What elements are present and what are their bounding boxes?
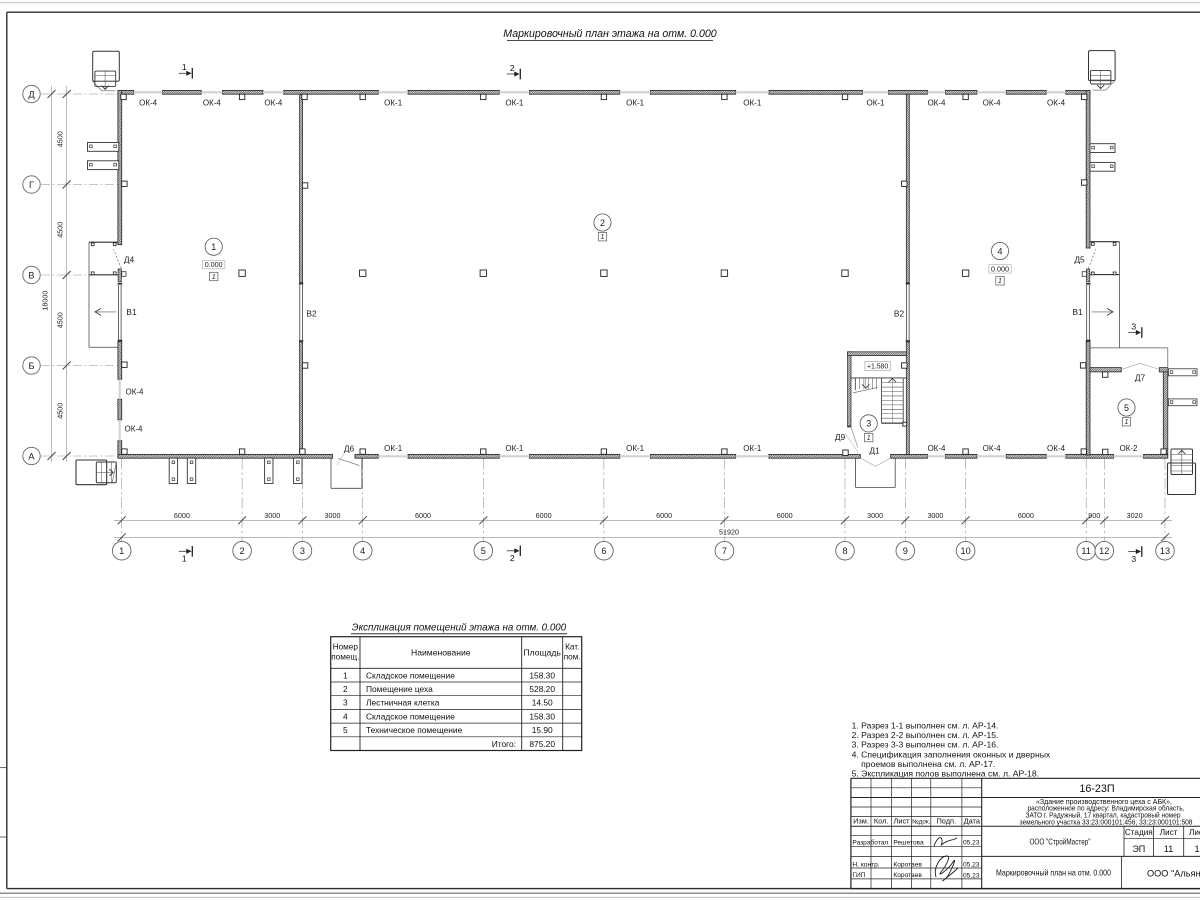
svg-text:№док.: №док. (912, 818, 930, 825)
svg-text:Складское помещение: Складское помещение (366, 670, 455, 680)
svg-text:ООО "Альянс: ООО "Альянс (1147, 868, 1200, 878)
svg-text:3. Разрез 3-3 выполнен см. л.: 3. Разрез 3-3 выполнен см. л. АР-16. (852, 740, 999, 750)
svg-text:875.20: 875.20 (529, 739, 555, 749)
svg-text:1: 1 (1125, 419, 1129, 426)
svg-text:11: 11 (1164, 844, 1173, 854)
svg-text:9: 9 (903, 546, 908, 556)
svg-text:1: 1 (182, 554, 187, 564)
svg-text:Лестничная клетка: Лестничная клетка (366, 698, 440, 708)
svg-text:Разработал: Разработал (852, 838, 888, 846)
svg-text:Техническое помещение: Техническое помещение (366, 725, 463, 735)
svg-text:6000: 6000 (777, 511, 793, 520)
svg-text:ОК-4: ОК-4 (264, 98, 283, 107)
svg-text:пом.: пом. (564, 653, 581, 662)
svg-text:ОК-1: ОК-1 (384, 444, 403, 453)
svg-text:+1.580: +1.580 (867, 363, 888, 370)
svg-text:900: 900 (1088, 511, 1100, 520)
svg-text:Д4: Д4 (124, 255, 135, 265)
svg-text:ОК-1: ОК-1 (743, 98, 762, 107)
svg-text:2: 2 (343, 684, 348, 694)
svg-text:ОК-4: ОК-4 (983, 444, 1002, 453)
svg-text:ОК-4: ОК-4 (125, 425, 144, 434)
svg-text:05.23: 05.23 (963, 840, 980, 847)
svg-text:16-23П: 16-23П (1079, 783, 1114, 795)
svg-text:4: 4 (997, 246, 1002, 256)
svg-text:ОК-4: ОК-4 (203, 98, 222, 107)
svg-text:ОК-4: ОК-4 (927, 444, 946, 453)
svg-text:1: 1 (343, 670, 348, 680)
svg-text:1. Разрез 1-1 выполнен см. л.: 1. Разрез 1-1 выполнен см. л. АР-14. (852, 720, 999, 730)
svg-text:1: 1 (601, 234, 605, 241)
svg-text:Помещение цеха: Помещение цеха (366, 684, 433, 694)
svg-text:Д6: Д6 (344, 444, 355, 454)
svg-text:1: 1 (212, 274, 216, 281)
svg-text:4. Спецификация заполнения око: 4. Спецификация заполнения оконных и две… (852, 749, 1051, 759)
svg-text:13: 13 (1160, 546, 1170, 556)
svg-text:Лис: Лис (1189, 828, 1200, 837)
svg-text:ОК-1: ОК-1 (626, 444, 645, 453)
svg-text:12: 12 (1099, 546, 1109, 556)
svg-text:5: 5 (1124, 403, 1129, 413)
svg-text:Кол.: Кол. (874, 817, 889, 826)
svg-text:В1: В1 (126, 307, 137, 317)
svg-text:ОК-4: ОК-4 (927, 98, 946, 107)
svg-text:3: 3 (866, 419, 871, 429)
svg-text:3000: 3000 (325, 511, 341, 520)
svg-text:Н. контр.: Н. контр. (852, 861, 879, 868)
svg-text:земельного участка 33:23:00010: земельного участка 33:23:000101:456, 33:… (1020, 817, 1193, 826)
svg-text:158.30: 158.30 (529, 670, 555, 680)
svg-text:А: А (28, 451, 35, 461)
svg-text:3: 3 (300, 546, 305, 556)
svg-text:2: 2 (510, 553, 515, 563)
svg-text:2. Разрез 2-2 выполнен см. л.: 2. Разрез 2-2 выполнен см. л. АР-15. (852, 730, 999, 740)
svg-text:проемов выполнена см. л. АР-17: проемов выполнена см. л. АР-17. (852, 759, 996, 769)
svg-text:8: 8 (842, 546, 847, 556)
svg-text:3: 3 (343, 698, 348, 708)
svg-text:5: 5 (481, 546, 486, 556)
svg-text:6000: 6000 (656, 511, 672, 520)
svg-text:ОК-4: ОК-4 (1047, 98, 1066, 107)
svg-text:ОК-1: ОК-1 (743, 444, 762, 453)
svg-text:3: 3 (1131, 554, 1136, 564)
svg-text:Д: Д (28, 89, 35, 99)
svg-text:4500: 4500 (56, 403, 65, 419)
svg-text:Д9: Д9 (835, 432, 846, 442)
svg-text:6000: 6000 (174, 511, 190, 520)
svg-text:Итого:: Итого: (492, 739, 516, 749)
svg-text:Д1: Д1 (869, 446, 880, 456)
svg-text:Маркировочный план этажа на от: Маркировочный план этажа на отм. 0.000 (503, 28, 716, 40)
svg-text:11: 11 (1081, 546, 1091, 556)
svg-text:528.20: 528.20 (529, 684, 555, 694)
svg-text:3: 3 (1131, 321, 1136, 331)
svg-text:ОК-1: ОК-1 (384, 98, 403, 107)
svg-text:Наименование: Наименование (411, 648, 471, 658)
svg-text:ОК-4: ОК-4 (983, 98, 1002, 107)
svg-text:4: 4 (360, 546, 365, 556)
svg-text:5: 5 (343, 725, 348, 735)
svg-text:Складское помещение: Складское помещение (366, 711, 455, 721)
svg-text:3000: 3000 (927, 511, 943, 520)
svg-text:2: 2 (240, 546, 245, 556)
svg-text:Стадия: Стадия (1125, 828, 1153, 837)
svg-text:1: 1 (182, 62, 187, 72)
svg-text:ОК-1: ОК-1 (626, 98, 645, 107)
svg-text:Кат.: Кат. (565, 643, 579, 652)
svg-text:4500: 4500 (56, 312, 65, 328)
svg-text:ОК-4: ОК-4 (139, 98, 158, 107)
svg-text:5. Экспликация полов выполнена: 5. Экспликация полов выполнена см. л. АР… (852, 769, 1039, 779)
svg-text:Д5: Д5 (1074, 255, 1085, 265)
svg-text:ОК-2: ОК-2 (1120, 444, 1139, 453)
svg-text:помещ.: помещ. (331, 653, 359, 662)
svg-text:Изм.: Изм. (853, 817, 869, 826)
svg-text:ООО "СтройМастер": ООО "СтройМастер" (1030, 838, 1091, 847)
svg-text:2: 2 (510, 63, 515, 73)
svg-text:3000: 3000 (867, 511, 883, 520)
svg-text:ГИП: ГИП (852, 872, 865, 879)
svg-text:7: 7 (722, 546, 727, 556)
svg-text:6000: 6000 (536, 511, 552, 520)
svg-text:6000: 6000 (415, 511, 431, 520)
svg-text:4500: 4500 (56, 131, 65, 147)
svg-text:15.90: 15.90 (532, 725, 553, 735)
svg-text:14.50: 14.50 (532, 698, 553, 708)
svg-text:3020: 3020 (1127, 511, 1143, 520)
svg-text:Маркировочный план на отм. 0.0: Маркировочный план на отм. 0.000 (996, 868, 1111, 877)
svg-text:1: 1 (211, 242, 216, 252)
svg-text:05.23: 05.23 (963, 862, 980, 869)
svg-text:ОК-1: ОК-1 (867, 98, 886, 107)
svg-text:Д7: Д7 (1135, 373, 1146, 383)
svg-text:158.30: 158.30 (529, 711, 555, 721)
svg-text:ОК-4: ОК-4 (1047, 444, 1066, 453)
svg-text:ЭП: ЭП (1132, 844, 1145, 854)
svg-text:ОК-1: ОК-1 (505, 444, 524, 453)
svg-text:1: 1 (119, 546, 124, 556)
svg-text:3000: 3000 (264, 511, 280, 520)
svg-text:0.000: 0.000 (991, 264, 1009, 273)
svg-text:4: 4 (343, 711, 348, 721)
svg-text:В: В (28, 270, 34, 280)
svg-text:10: 10 (960, 546, 970, 556)
svg-text:Коротаев: Коротаев (893, 861, 922, 868)
svg-text:В2: В2 (894, 308, 905, 318)
svg-text:1: 1 (998, 278, 1002, 285)
svg-text:ОК-1: ОК-1 (505, 98, 524, 107)
svg-text:Решетова: Решетова (893, 839, 924, 846)
svg-text:4500: 4500 (56, 222, 65, 238)
svg-text:В1: В1 (1072, 307, 1083, 317)
svg-text:Коротаев: Коротаев (893, 872, 922, 879)
svg-text:Дата: Дата (964, 817, 981, 826)
svg-text:6: 6 (601, 546, 606, 556)
svg-text:18000: 18000 (40, 291, 49, 311)
svg-text:Лист: Лист (1160, 828, 1178, 837)
svg-text:Экспликация помещений этажа на: Экспликация помещений этажа на отм. 0.00… (352, 623, 567, 634)
svg-text:1: 1 (867, 435, 871, 442)
svg-text:51920: 51920 (719, 528, 739, 537)
svg-text:0.000: 0.000 (205, 260, 223, 269)
svg-text:Площадь: Площадь (523, 648, 561, 658)
svg-text:Г: Г (29, 180, 34, 190)
svg-text:6000: 6000 (1018, 511, 1034, 520)
svg-text:Б: Б (28, 361, 34, 371)
svg-text:В2: В2 (306, 308, 317, 318)
svg-text:Номер: Номер (333, 643, 359, 652)
svg-text:Подп.: Подп. (936, 817, 956, 826)
svg-text:2: 2 (600, 218, 605, 228)
svg-text:ОК-4: ОК-4 (126, 387, 145, 396)
svg-text:1: 1 (1194, 844, 1199, 854)
svg-text:Лист: Лист (893, 817, 910, 826)
svg-text:05.23: 05.23 (963, 872, 980, 879)
